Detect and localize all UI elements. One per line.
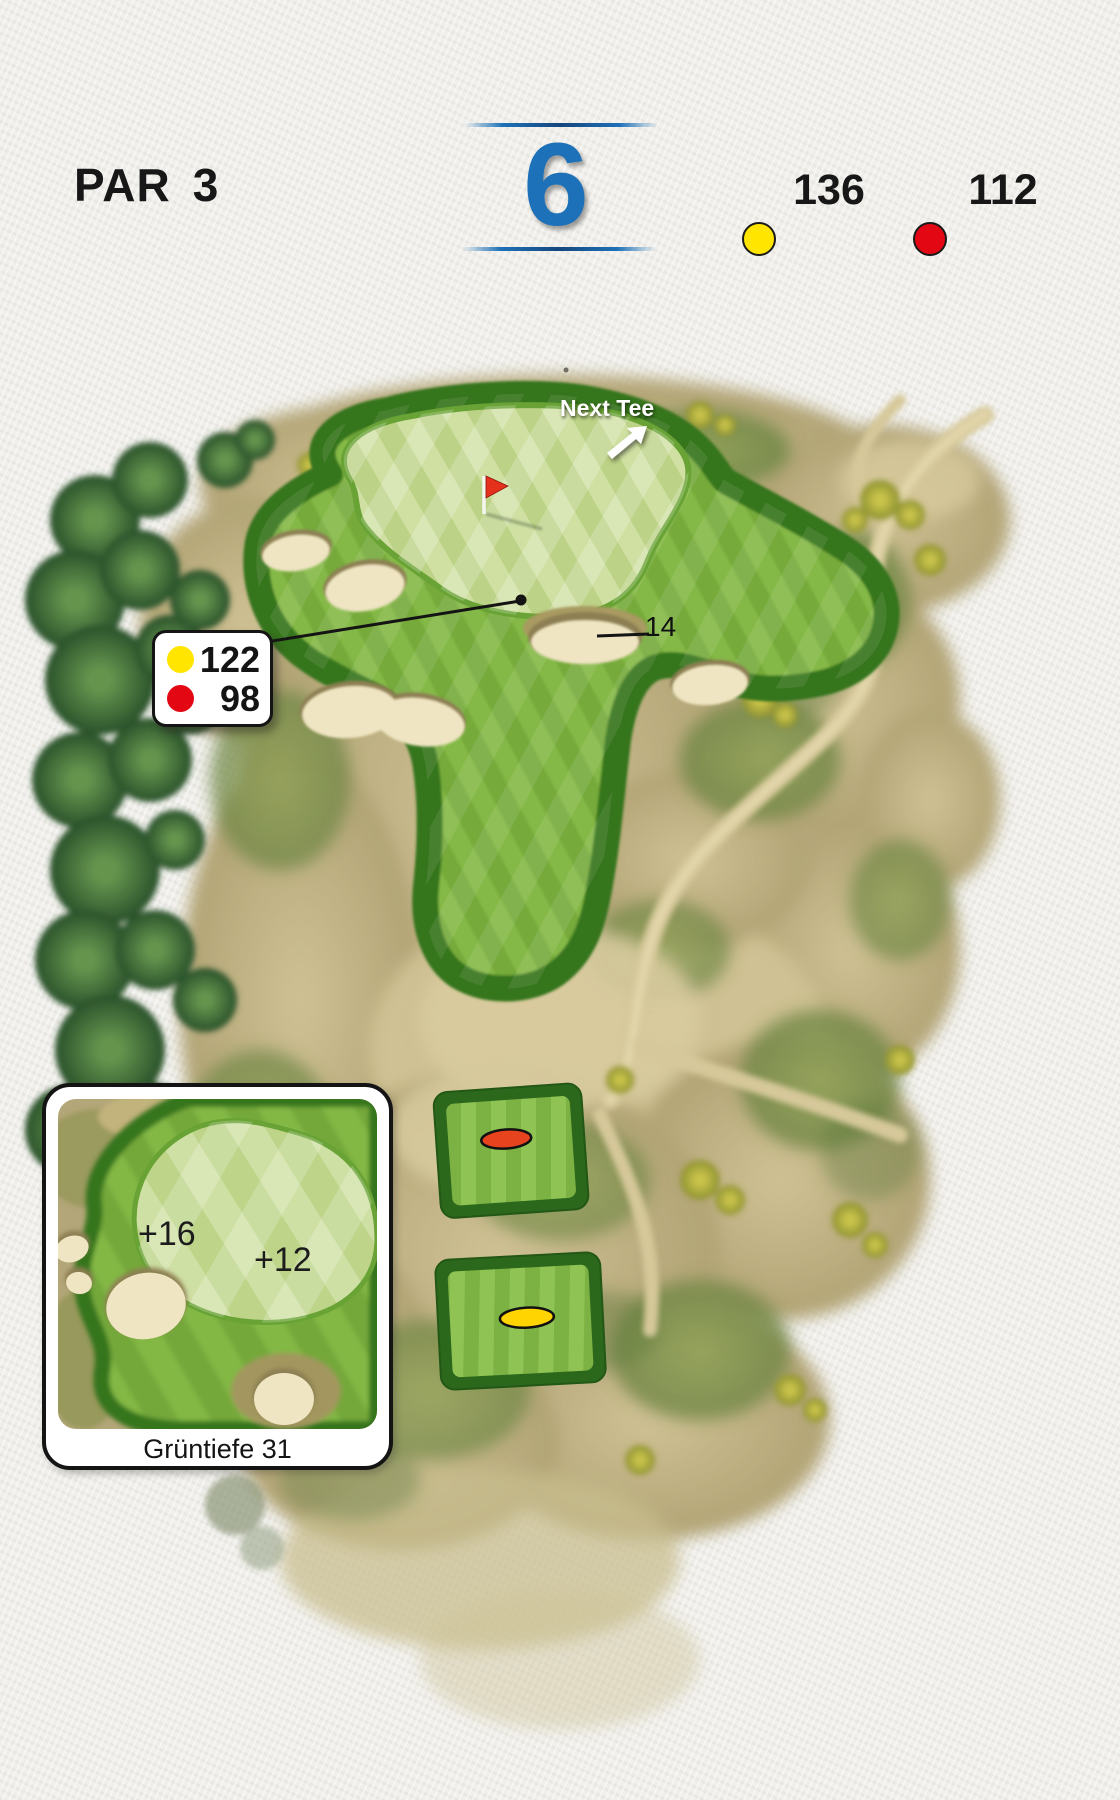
callout-red-dot [167, 685, 194, 712]
hole-number-rule-bottom [462, 247, 656, 251]
callout-red-distance: 98 [194, 681, 260, 717]
green-inset: +16 +12 Grüntiefe 31 [42, 1083, 393, 1470]
callout-yellow-distance: 122 [194, 642, 260, 678]
red-tee-distance: 112 [948, 166, 1058, 215]
yellow-tee-marker [742, 222, 776, 256]
par-value: 3 [193, 159, 220, 211]
next-tee-label: Next Tee [560, 395, 654, 422]
yardage-book-page: PAR3 6 136 112 Next Tee 122 98 14 [0, 0, 1120, 1800]
inset-front-distance: +16 [138, 1215, 196, 1254]
callout-yellow-dot [167, 646, 194, 673]
inset-caption: Grüntiefe 31 [58, 1429, 377, 1465]
inset-back-distance: +12 [254, 1241, 312, 1280]
red-tee-box [433, 1083, 589, 1219]
yellow-tee-distance: 136 [774, 166, 884, 215]
hole-number: 6 [456, 126, 656, 244]
par-label: PAR3 [74, 158, 219, 212]
par-word: PAR [74, 159, 171, 211]
yellow-tee-box [435, 1252, 607, 1390]
bunker-leader-line [597, 634, 649, 636]
bunker-distance-label: 14 [645, 611, 676, 643]
green-inset-svg [58, 1099, 377, 1429]
pin-distance-callout: 122 98 [152, 630, 273, 727]
red-tee-marker [913, 222, 947, 256]
green-inset-illustration: +16 +12 [58, 1099, 377, 1429]
callout-red-row: 98 [167, 679, 260, 718]
hole-illustration [0, 0, 1120, 1800]
callout-yellow-row: 122 [167, 640, 260, 679]
